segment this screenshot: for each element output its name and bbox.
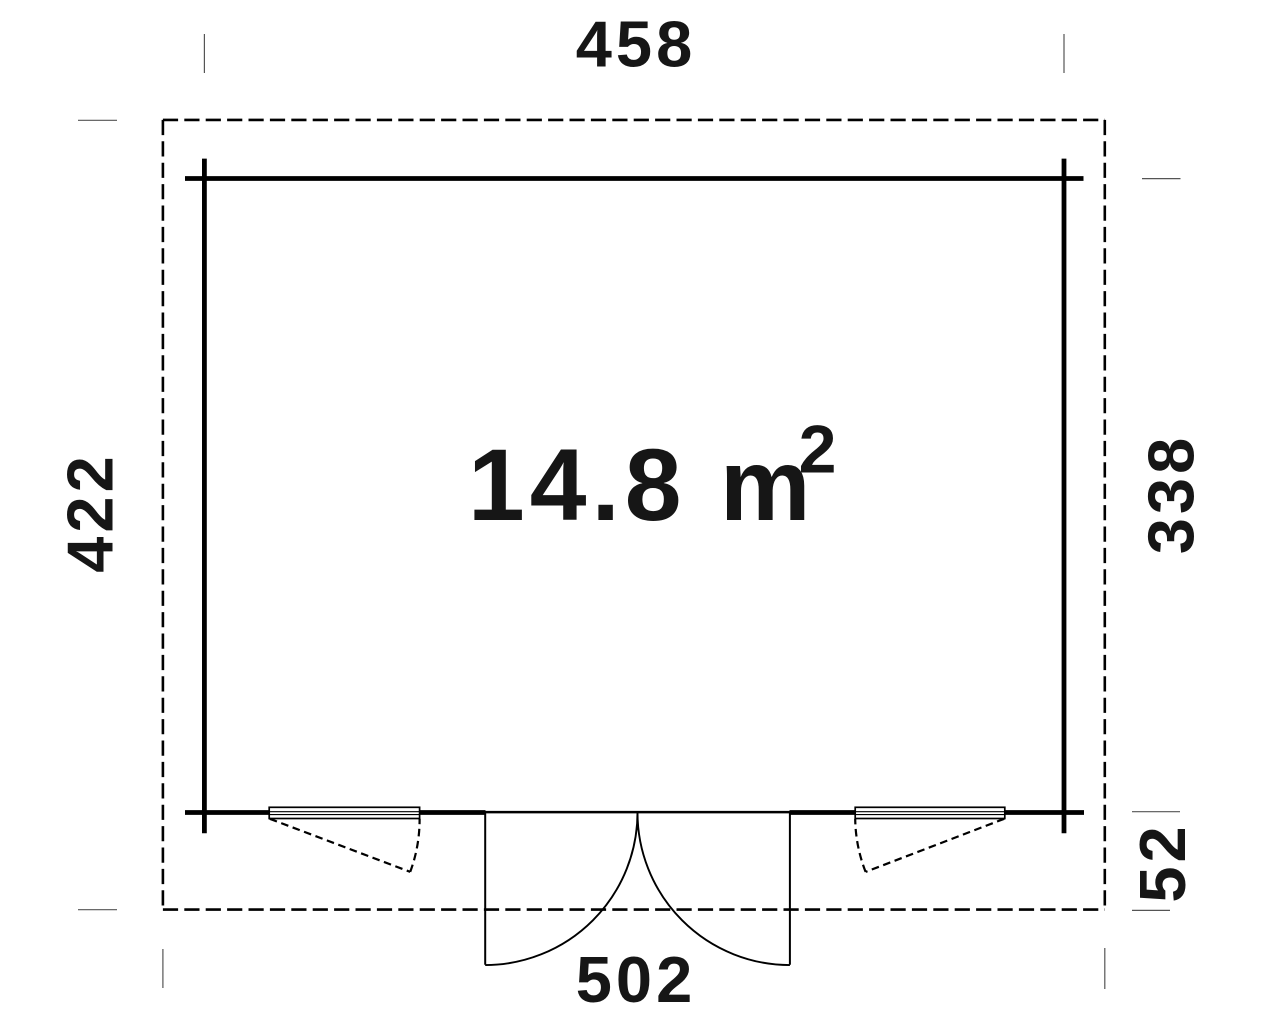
svg-text:502: 502 [576,943,696,1015]
svg-text:14.8 m2: 14.8 m2 [468,412,841,542]
svg-text:338: 338 [1135,434,1208,554]
svg-text:52: 52 [1126,822,1199,902]
svg-text:422: 422 [54,452,127,572]
svg-text:458: 458 [576,8,696,81]
